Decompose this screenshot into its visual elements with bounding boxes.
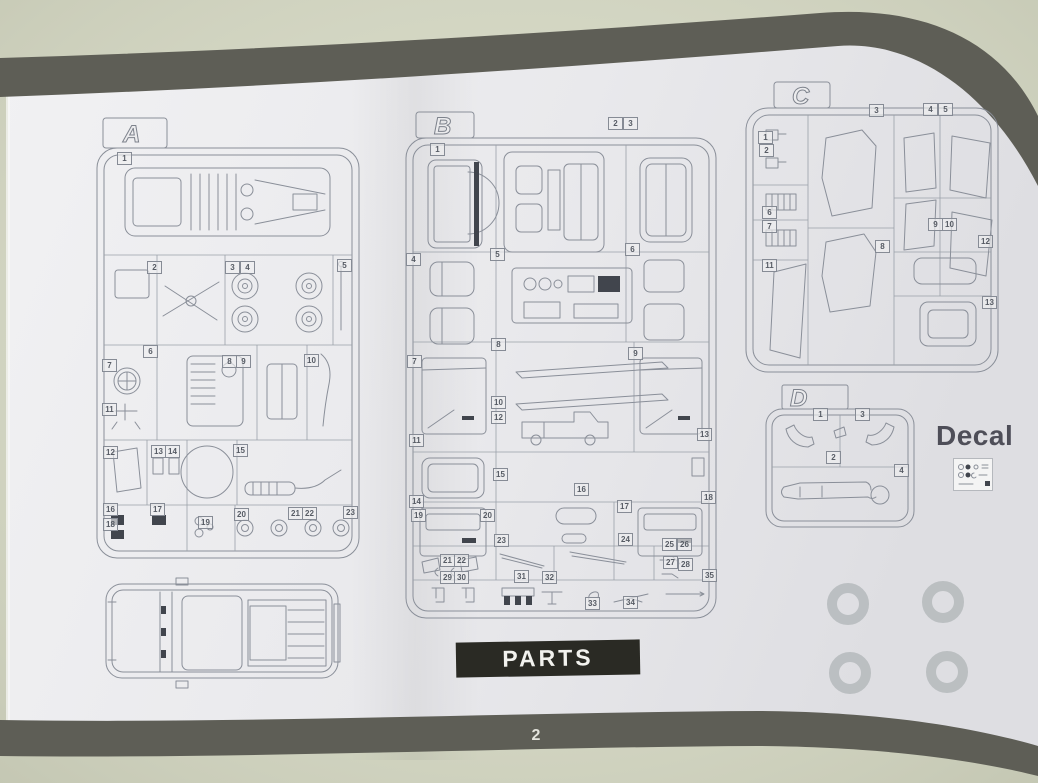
sprue-c-letter: C — [792, 83, 810, 110]
sprue-d: D 1 2 3 4 — [764, 383, 916, 531]
part-number: 31 — [514, 570, 529, 583]
tire-ring-illustration — [827, 583, 869, 625]
arm-part-illustration — [866, 423, 894, 445]
part-number: 6 — [762, 206, 777, 219]
part-number: 21 — [288, 507, 303, 520]
part-number: 1 — [430, 143, 445, 156]
part-number: 10 — [491, 396, 506, 409]
part-number: 9 — [236, 355, 251, 368]
part-number: 8 — [491, 338, 506, 351]
part-number: 34 — [623, 596, 638, 609]
paper-left-edge — [6, 96, 10, 754]
part-number: 18 — [701, 491, 716, 504]
part-number: 19 — [198, 516, 213, 529]
part-number: 5 — [938, 103, 953, 116]
part-number: 6 — [143, 345, 158, 358]
sprue-c: C — [744, 80, 1002, 380]
part-number: 11 — [762, 259, 777, 272]
part-number: 10 — [304, 354, 319, 367]
part-number: 15 — [233, 444, 248, 457]
part-number: 8 — [222, 355, 237, 368]
part-number: 4 — [240, 261, 255, 274]
part-number: 13 — [151, 445, 166, 458]
part-number: 11 — [409, 434, 424, 447]
part-number: 33 — [585, 597, 600, 610]
instruction-sheet-photo: A — [0, 0, 1038, 783]
window-frame-part-illustration — [640, 158, 692, 242]
windshield-part-illustration — [770, 264, 806, 358]
parts-banner: PARTS — [456, 639, 641, 677]
sprue-a-letter: A — [122, 121, 140, 148]
sprue-a-drawing: A — [95, 116, 361, 562]
tire-ring-illustration — [829, 652, 871, 694]
part-number: 12 — [103, 446, 118, 459]
part-number: 15 — [493, 468, 508, 481]
parts-banner-label: PARTS — [502, 644, 594, 673]
car-top-view-illustration — [98, 572, 346, 694]
small-dark-part-illustration — [502, 588, 534, 605]
part-number: 2 — [608, 117, 623, 130]
part-number: 14 — [409, 495, 424, 508]
part-number: 18 — [103, 518, 118, 531]
part-number: 22 — [302, 507, 317, 520]
door-panel-part-illustration — [640, 358, 702, 434]
sprue-c-drawing: C — [744, 80, 1002, 380]
sprue-a: A — [95, 116, 361, 562]
part-number: 1 — [758, 131, 773, 144]
part-number: 10 — [942, 218, 957, 231]
part-number: 28 — [678, 558, 693, 571]
part-number: 20 — [234, 508, 249, 521]
part-number: 26 — [677, 538, 692, 551]
part-number: 2 — [826, 451, 841, 464]
page-number: 2 — [518, 727, 554, 745]
part-number: 6 — [625, 243, 640, 256]
part-number: 8 — [875, 240, 890, 253]
part-number: 5 — [490, 248, 505, 261]
part-number: 1 — [117, 152, 132, 165]
part-number: 24 — [618, 533, 633, 546]
part-number: 11 — [102, 403, 117, 416]
part-number: 9 — [628, 347, 643, 360]
part-number: 21 — [440, 554, 455, 567]
part-number: 17 — [150, 503, 165, 516]
part-number: 3 — [225, 261, 240, 274]
part-number: 4 — [406, 253, 421, 266]
part-number: 20 — [480, 509, 495, 522]
part-number: 2 — [147, 261, 162, 274]
part-number: 12 — [491, 411, 506, 424]
part-number: 13 — [697, 428, 712, 441]
part-number: 14 — [165, 445, 180, 458]
part-number: 32 — [542, 571, 557, 584]
part-number: 4 — [923, 103, 938, 116]
part-number: 29 — [440, 571, 455, 584]
part-number: 17 — [617, 500, 632, 513]
tire-ring-illustration — [926, 651, 968, 693]
sprue-d-letter: D — [790, 385, 807, 412]
part-number: 5 — [337, 259, 352, 272]
part-number: 12 — [978, 235, 993, 248]
part-number: 16 — [574, 483, 589, 496]
arm-part-illustration — [786, 425, 814, 447]
part-number: 3 — [855, 408, 870, 421]
part-number: 7 — [102, 359, 117, 372]
decal-heading: Decal — [936, 420, 1013, 452]
part-number: 25 — [662, 538, 677, 551]
part-number: 23 — [494, 534, 509, 547]
part-number: 35 — [702, 569, 717, 582]
wheel-parts-illustration — [232, 273, 322, 332]
sprue-b: B — [404, 110, 722, 624]
tire-ring-illustration — [922, 581, 964, 623]
part-number: 7 — [762, 220, 777, 233]
decal-sheet-illustration — [953, 458, 993, 491]
muffler-part-illustration — [245, 470, 341, 495]
door-panel-part-illustration — [422, 358, 486, 434]
part-number: 2 — [759, 144, 774, 157]
cab-interior-part-illustration — [504, 152, 604, 252]
truck-part-illustration — [522, 412, 608, 445]
part-number: 3 — [869, 104, 884, 117]
part-number: 4 — [894, 464, 909, 477]
part-number: 1 — [813, 408, 828, 421]
part-number: 22 — [454, 554, 469, 567]
radiator-part-illustration — [428, 160, 499, 248]
door-card-part-illustration — [420, 508, 486, 556]
part-number: 3 — [623, 117, 638, 130]
part-number: 7 — [407, 355, 422, 368]
part-number: 16 — [103, 503, 118, 516]
part-number: 27 — [663, 556, 678, 569]
part-number: 9 — [928, 218, 943, 231]
figure-part-illustration — [782, 482, 890, 504]
part-number: 30 — [454, 571, 469, 584]
sprue-b-letter: B — [434, 113, 451, 140]
chassis-part-illustration — [125, 168, 330, 236]
part-number: 23 — [343, 506, 358, 519]
part-number: 19 — [411, 509, 426, 522]
part-number: 13 — [982, 296, 997, 309]
dashboard-part-illustration — [512, 268, 632, 323]
